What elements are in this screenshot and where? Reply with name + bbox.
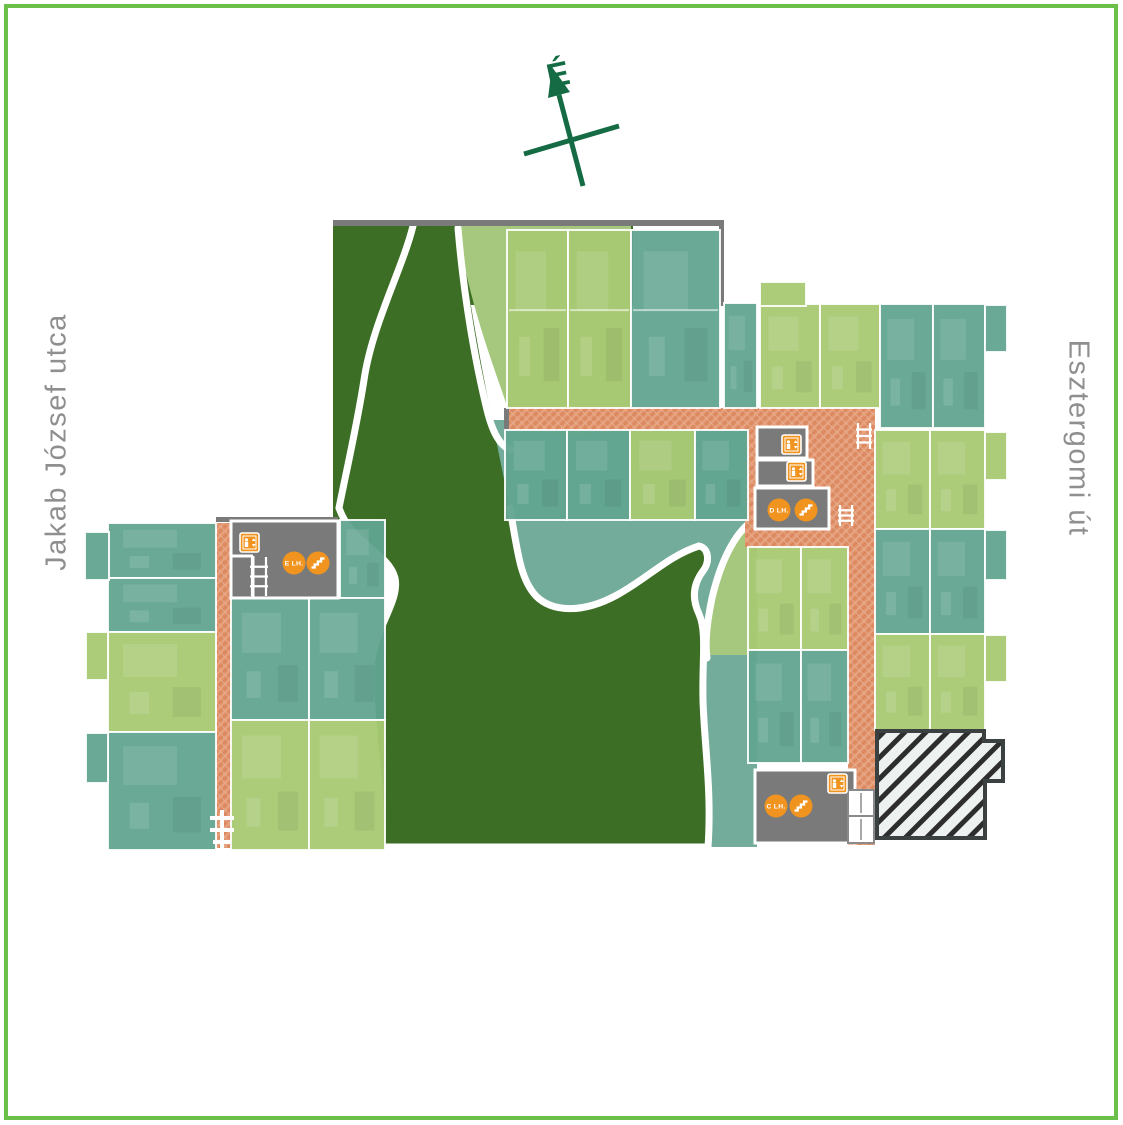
balcony xyxy=(985,305,1007,352)
stairs-icon xyxy=(790,795,813,818)
balcony xyxy=(760,282,806,306)
balcony xyxy=(985,432,1007,480)
north-label: É xyxy=(543,54,573,96)
balcony xyxy=(85,532,109,580)
balcony xyxy=(86,632,108,680)
balcony xyxy=(86,733,108,783)
stairs-icon xyxy=(795,499,818,522)
elevator-icon xyxy=(787,462,806,481)
staircase-label: D LH. xyxy=(768,499,791,522)
staircase-label: E LH. xyxy=(283,552,306,575)
balcony xyxy=(985,530,1007,580)
boundary-wall xyxy=(333,220,724,226)
elevator-icon xyxy=(782,435,801,454)
north-arrow: É xyxy=(524,54,619,186)
corridor xyxy=(216,523,231,848)
site-plan-page: Jakab József utca Esztergomi út E LH.D L… xyxy=(0,0,1123,1125)
svg-text:D LH.: D LH. xyxy=(769,507,788,514)
staircase-label: C LH. xyxy=(765,795,788,818)
boundary-wall xyxy=(504,408,509,431)
hatched-building xyxy=(877,731,1003,838)
svg-text:C LH.: C LH. xyxy=(766,803,785,810)
site-plan-svg: E LH.D LH.C LH. É xyxy=(0,0,1123,1125)
svg-text:E LH.: E LH. xyxy=(285,560,304,567)
elevator-icon xyxy=(240,533,259,552)
stairs-icon xyxy=(307,552,330,575)
elevator-icon xyxy=(828,774,847,793)
stair-core xyxy=(755,488,829,529)
balcony xyxy=(985,635,1007,682)
